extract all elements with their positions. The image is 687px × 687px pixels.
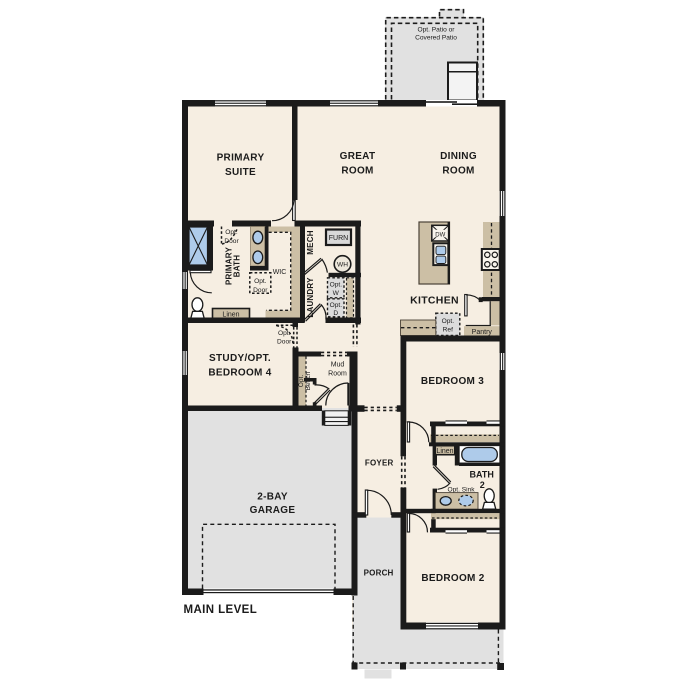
svg-text:Opt.: Opt. <box>254 278 267 285</box>
svg-text:ROOM: ROOM <box>442 166 474 177</box>
svg-text:DW: DW <box>435 232 445 238</box>
svg-text:PRIMARY: PRIMARY <box>217 153 265 164</box>
svg-text:Linen: Linen <box>222 311 239 318</box>
svg-text:MAIN LEVEL: MAIN LEVEL <box>184 604 258 616</box>
svg-text:Pantry: Pantry <box>472 329 493 336</box>
svg-text:MECH: MECH <box>306 230 315 254</box>
svg-text:Opt.: Opt. <box>225 229 238 236</box>
svg-text:GARAGE: GARAGE <box>250 505 296 516</box>
svg-text:LAUNDRY: LAUNDRY <box>306 277 315 318</box>
svg-text:D: D <box>333 310 338 317</box>
svg-text:W: W <box>333 290 340 297</box>
svg-text:FURN: FURN <box>329 235 348 242</box>
svg-text:Opt.: Opt. <box>278 330 291 337</box>
svg-text:Door: Door <box>277 339 292 346</box>
svg-text:Opt.: Opt. <box>330 282 343 289</box>
svg-text:Opt.: Opt. <box>442 318 455 325</box>
svg-text:FOYER: FOYER <box>365 459 394 468</box>
svg-text:STUDY/OPT.: STUDY/OPT. <box>209 353 271 364</box>
svg-text:Linen: Linen <box>436 448 453 455</box>
svg-text:PORCH: PORCH <box>364 569 394 578</box>
svg-text:BEDROOM 3: BEDROOM 3 <box>421 376 484 387</box>
svg-text:Door: Door <box>224 238 239 245</box>
svg-text:BEDROOM 2: BEDROOM 2 <box>421 573 484 584</box>
svg-text:DINING: DINING <box>440 151 477 162</box>
svg-text:BEDROOM 4: BEDROOM 4 <box>208 368 271 379</box>
svg-text:BATH: BATH <box>233 255 242 277</box>
svg-text:Mud: Mud <box>331 362 345 369</box>
svg-text:Covered Patio: Covered Patio <box>415 35 457 42</box>
svg-text:Opt.: Opt. <box>298 375 305 388</box>
svg-text:Door: Door <box>253 287 268 294</box>
svg-text:Ref: Ref <box>443 327 453 334</box>
svg-text:Room: Room <box>328 371 347 378</box>
svg-text:SUITE: SUITE <box>225 167 256 178</box>
svg-text:BATH: BATH <box>470 470 494 480</box>
svg-text:Opt.: Opt. <box>330 302 343 309</box>
svg-text:2: 2 <box>480 480 485 490</box>
svg-text:Opt. Patio or: Opt. Patio or <box>417 27 455 34</box>
svg-text:GREAT: GREAT <box>340 151 376 162</box>
svg-text:WH: WH <box>337 261 348 268</box>
svg-text:WIC: WIC <box>273 269 287 276</box>
svg-text:2-BAY: 2-BAY <box>257 492 288 503</box>
svg-text:ROOM: ROOM <box>341 166 373 177</box>
svg-text:KITCHEN: KITCHEN <box>410 295 459 307</box>
